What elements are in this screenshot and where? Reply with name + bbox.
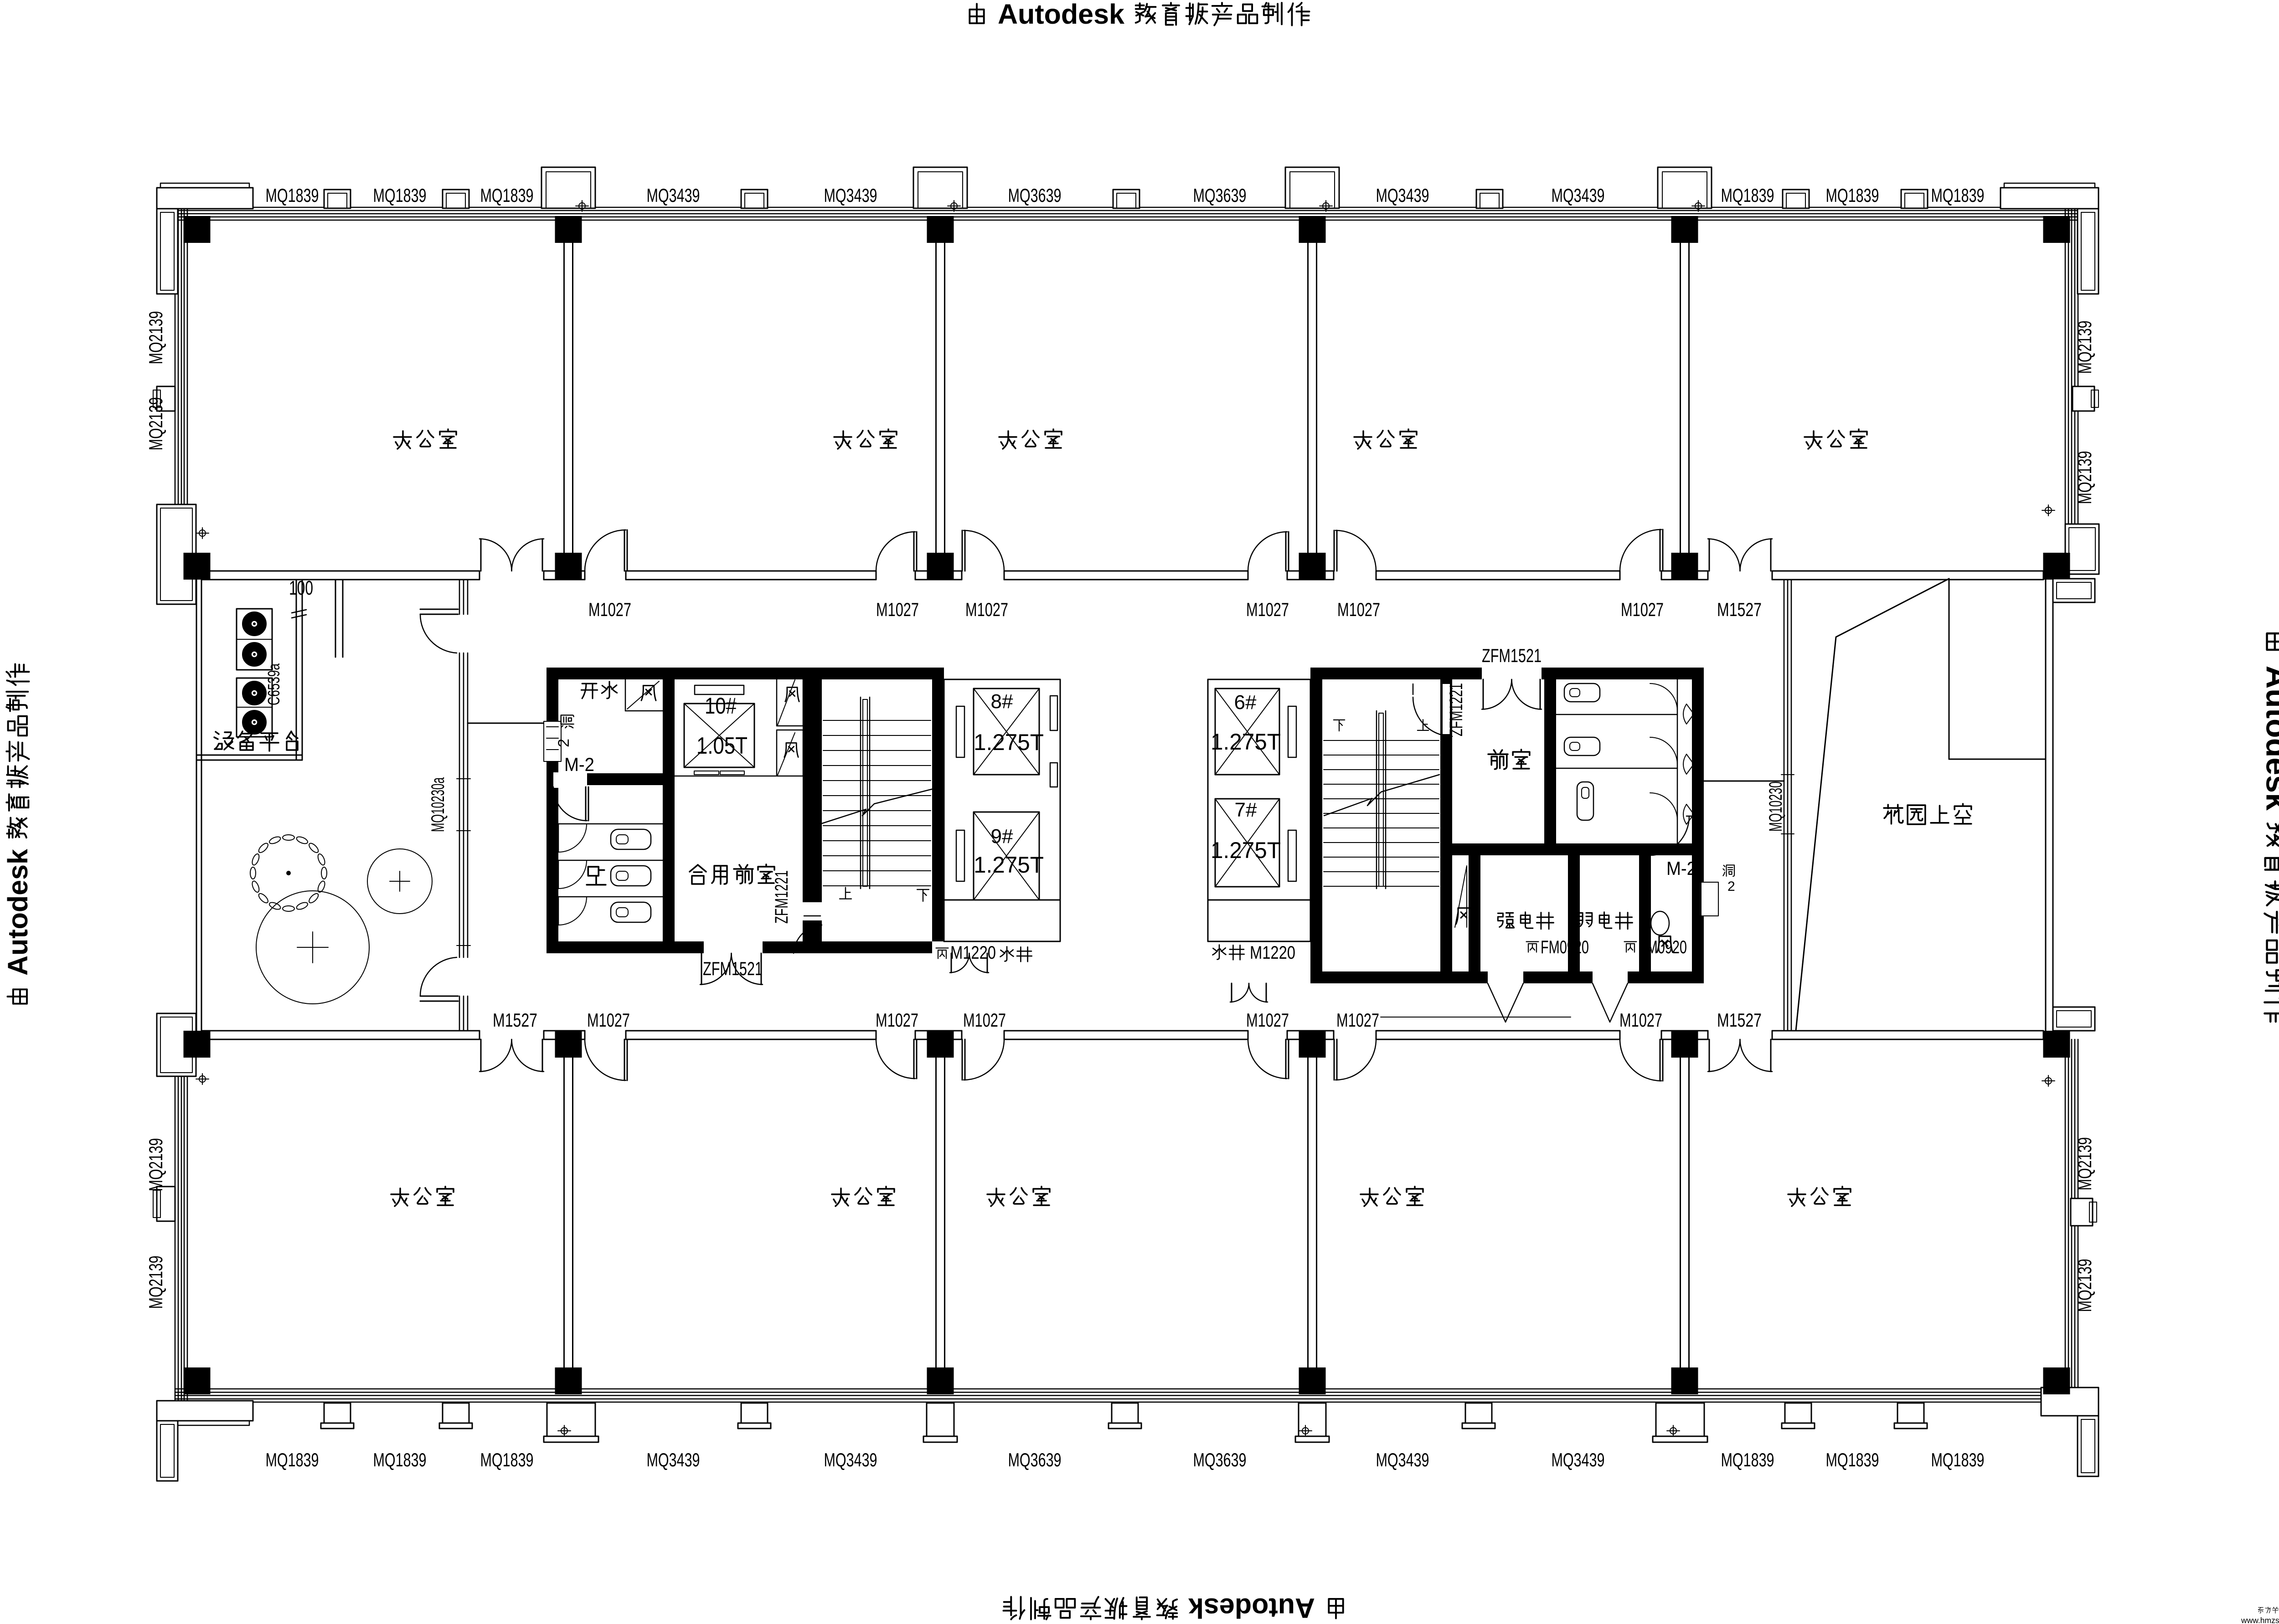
svg-text:MQ10230: MQ10230 [1766,781,1786,832]
svg-text:7#: 7# [1235,799,1257,821]
svg-text:MQ1839: MQ1839 [1721,1449,1774,1470]
svg-text:1.05T: 1.05T [696,733,748,759]
svg-text:2: 2 [1727,879,1735,894]
svg-text:MQ3439: MQ3439 [824,1449,877,1470]
svg-text:MQ1839: MQ1839 [266,1449,319,1470]
svg-text:MQ1839: MQ1839 [266,185,319,206]
svg-text:1.275T: 1.275T [974,730,1044,755]
svg-text:MQ2139: MQ2139 [145,311,166,365]
svg-text:8#: 8# [991,690,1013,713]
svg-text:MQ2139: MQ2139 [2074,1259,2095,1312]
svg-text:M1027: M1027 [1246,1009,1289,1031]
svg-text:MQ3439: MQ3439 [1376,1449,1429,1470]
svg-text:M1027: M1027 [963,1009,1006,1031]
svg-text:M1027: M1027 [1619,1009,1662,1031]
svg-text:M1527: M1527 [1717,1009,1762,1031]
svg-text:M1027: M1027 [1246,599,1289,620]
svg-text:MQ3439: MQ3439 [647,1449,700,1470]
svg-text:100: 100 [289,577,313,599]
svg-text:10#: 10# [705,693,737,719]
svg-text:MQ10230a: MQ10230a [428,777,448,832]
svg-text:MQ1839: MQ1839 [1826,185,1879,206]
svg-text:M1220: M1220 [950,943,996,963]
svg-text:MQ3639: MQ3639 [1193,1449,1247,1470]
svg-text:Autodesk: Autodesk [998,0,1124,30]
svg-text:M1027: M1027 [965,599,1008,620]
svg-text:M1027: M1027 [1336,1009,1379,1031]
svg-text:1.275T: 1.275T [974,852,1044,878]
svg-text:MQ1839: MQ1839 [1931,1449,1985,1470]
svg-text:ZFM1521: ZFM1521 [1482,645,1542,666]
svg-text:M1527: M1527 [1717,599,1762,620]
svg-text:M-2: M-2 [564,754,594,775]
svg-text:M1027: M1027 [876,599,919,620]
svg-text:Autodesk: Autodesk [2,849,33,976]
svg-text:M1027: M1027 [1621,599,1664,620]
svg-text:MQ1839: MQ1839 [1826,1449,1879,1470]
svg-text:M1027: M1027 [588,599,631,620]
svg-text:Autodesk: Autodesk [1188,1593,1315,1624]
svg-text:MQ1839: MQ1839 [373,1449,427,1470]
svg-text:FM0920: FM0920 [1639,937,1687,957]
svg-text:ZFM1221: ZFM1221 [772,870,792,924]
svg-text:6#: 6# [1234,691,1257,714]
svg-text:MQ1839: MQ1839 [480,185,534,206]
svg-text:MQ2139: MQ2139 [145,397,166,451]
svg-text:MQ2139: MQ2139 [145,1138,166,1192]
svg-text:MQ3439: MQ3439 [1552,185,1605,206]
svg-text:MQ1839: MQ1839 [480,1449,534,1470]
svg-text:9#: 9# [991,825,1013,848]
svg-text:MQ3439: MQ3439 [1552,1449,1605,1470]
svg-text:MQ2139: MQ2139 [145,1256,166,1309]
svg-text:Autodesk: Autodesk [2259,666,2279,811]
svg-text:MQ3439: MQ3439 [647,185,700,206]
svg-text:MQ3639: MQ3639 [1008,1449,1062,1470]
svg-text:MQ3439: MQ3439 [1376,185,1429,206]
svg-text:M1027: M1027 [1337,599,1380,620]
svg-text:www.hmzs.net: www.hmzs.net [2241,1616,2279,1624]
svg-text:MQ3439: MQ3439 [824,185,877,206]
svg-text:M-2: M-2 [1666,858,1696,879]
svg-text:MQ1839: MQ1839 [373,185,427,206]
svg-text:M1027: M1027 [876,1009,918,1031]
svg-text:MQ3639: MQ3639 [1193,185,1247,206]
svg-text:1.275T: 1.275T [1211,729,1281,755]
svg-text:FM0920: FM0920 [1541,937,1589,957]
svg-text:MQ2139: MQ2139 [2074,321,2095,374]
svg-text:ZFM1221: ZFM1221 [1446,683,1466,736]
svg-text:MQ2139: MQ2139 [2074,451,2095,504]
svg-text:MQ1839: MQ1839 [1931,185,1985,206]
svg-text:C6539a: C6539a [264,663,283,705]
svg-text:M1220: M1220 [1250,943,1295,963]
svg-text:M1527: M1527 [493,1009,537,1031]
svg-text:2: 2 [555,739,572,747]
svg-text:MQ1839: MQ1839 [1721,185,1774,206]
svg-text:MQ3639: MQ3639 [1008,185,1062,206]
svg-text:MQ2139: MQ2139 [2074,1137,2095,1191]
svg-text:1.275T: 1.275T [1211,838,1281,863]
svg-text:M1027: M1027 [587,1009,630,1031]
